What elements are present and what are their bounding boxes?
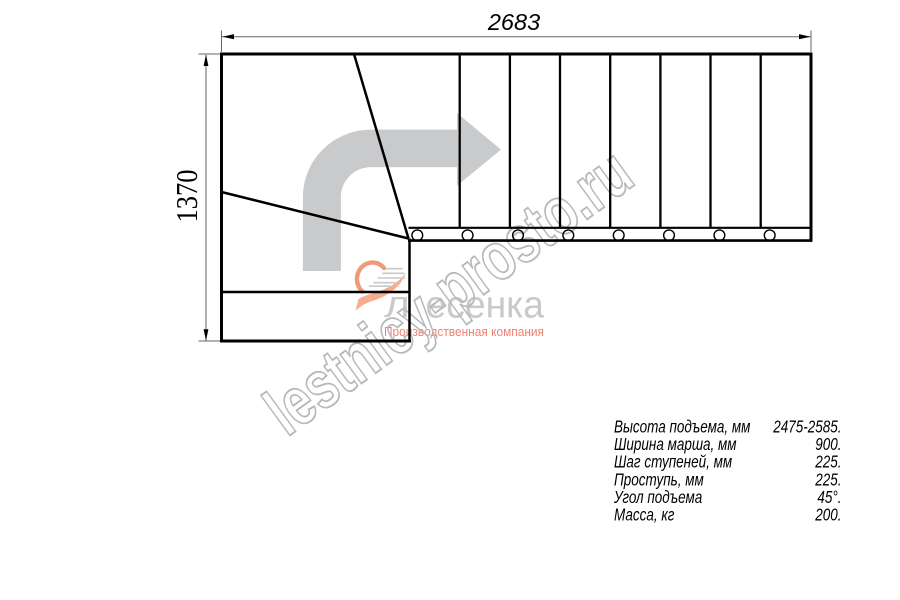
svg-text:200.: 200. bbox=[814, 506, 841, 525]
svg-text:Ширина марша, мм: Ширина марша, мм bbox=[614, 435, 737, 454]
svg-text:Шаг ступеней, мм: Шаг ступеней, мм bbox=[614, 453, 732, 472]
svg-text:2475-2585.: 2475-2585. bbox=[772, 418, 841, 437]
svg-text:900.: 900. bbox=[815, 435, 841, 454]
svg-text:225.: 225. bbox=[814, 453, 841, 472]
svg-text:225.: 225. bbox=[814, 471, 841, 490]
svg-text:2683: 2683 bbox=[487, 9, 540, 35]
svg-text:Масса, кг: Масса, кг bbox=[614, 506, 675, 525]
svg-text:1370: 1370 bbox=[169, 170, 204, 223]
svg-text:Проступь, мм: Проступь, мм bbox=[614, 471, 704, 490]
svg-text:45°.: 45°. bbox=[817, 488, 841, 507]
svg-text:Высота подъема, мм: Высота подъема, мм bbox=[614, 418, 750, 437]
svg-text:Угол подъема: Угол подъема bbox=[613, 488, 702, 507]
